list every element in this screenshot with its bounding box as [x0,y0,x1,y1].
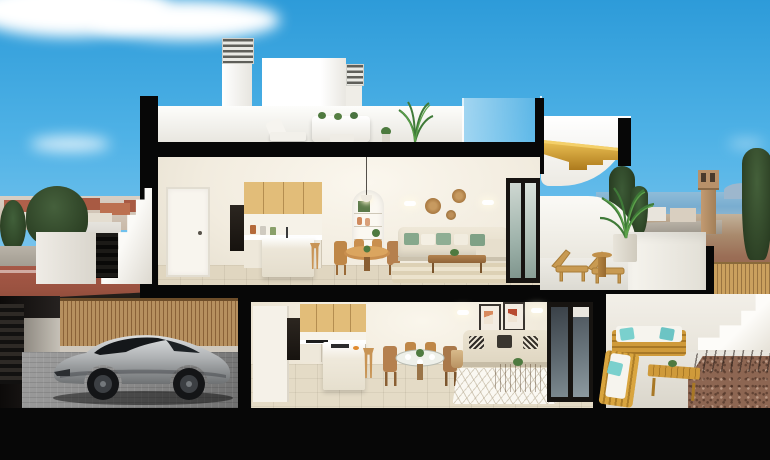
kitchen-wall-door [253,306,289,402]
watchtower-shaft [701,186,716,234]
upper-floor [158,157,540,285]
pendant-cord [366,157,367,195]
wicker-wall-plate [446,210,456,220]
side-table-base [598,257,606,277]
watchtower-openings [701,173,706,182]
artwork [484,311,493,324]
teal-pillow [659,327,675,341]
framed-artwork [503,302,525,331]
fruit-bowl [353,346,359,350]
wall-sconce [457,310,469,315]
wall-sconce [404,201,416,206]
wall-sconce [482,200,494,205]
niche-art [358,201,370,212]
green-cushions [404,233,419,245]
door-handle [198,231,202,235]
chimney-louver [346,64,364,86]
ground-floor [251,302,593,408]
cut-slab-step [152,142,190,157]
artwork [508,309,517,322]
stair-side-wall [36,232,96,284]
pergola-shadow-lines [688,350,770,372]
architectural-render [0,0,770,460]
timber-fence-right [714,262,770,298]
patterned-cushion [469,336,484,349]
kitchen-upper-cabinets [244,182,322,214]
dark-cushion [497,335,512,348]
kitchen-island [323,342,365,390]
basket [451,350,463,368]
niche-vases [357,217,362,225]
wicker-wall-plate [425,198,441,214]
kitchen-island [262,237,314,277]
island-faucet [286,227,288,238]
glass-balustrade [462,98,540,142]
table-plant [668,360,677,367]
terrace-palm [596,180,656,240]
niche-shelves [354,213,382,214]
interior-door [166,187,210,277]
oven-column [230,205,244,251]
patterned-cushion [523,336,538,349]
roof-sofa-plants [318,112,326,119]
white-cushions [421,234,435,245]
coffee-table-upper [428,255,486,263]
rug-upper [392,263,520,283]
door-glass [510,183,521,278]
cloud [728,140,764,147]
tall-tree [742,148,770,260]
coffee-table-legs [432,263,434,273]
table-plant [450,249,459,256]
tree [0,200,26,252]
roller-blind [573,307,589,317]
door-glass [525,183,536,278]
roof-palm-plant [396,98,434,144]
roof-lounge-seat [270,132,306,141]
wicker-coffee-table [495,364,543,392]
counter-items [250,225,256,234]
dining-set-ground [381,324,459,394]
stair-cut-post [618,118,631,166]
cut-wall-garage [237,300,251,410]
oven-column [287,318,300,360]
kitchen-backsplash [300,332,366,340]
cut-slab-bottom [0,408,770,460]
door-glass [573,307,589,397]
wall-sconce [531,308,543,313]
garage-slatted-gate [0,304,24,384]
wicker-wall-plate [452,189,466,203]
teal-pillow [619,327,635,341]
roof-plant-pot [382,134,390,142]
kitchen-upper-cabinets [300,304,366,332]
golden-staircase [543,136,623,176]
cloud [90,0,280,40]
framed-artwork [479,304,501,333]
door-glass [551,307,568,397]
island-sink [331,344,349,348]
sports-car [48,318,238,408]
cloud [30,136,110,152]
roof-table [330,134,354,142]
table-plant [513,358,523,366]
slatted-entry [96,233,118,278]
chimney-louver [222,38,254,64]
